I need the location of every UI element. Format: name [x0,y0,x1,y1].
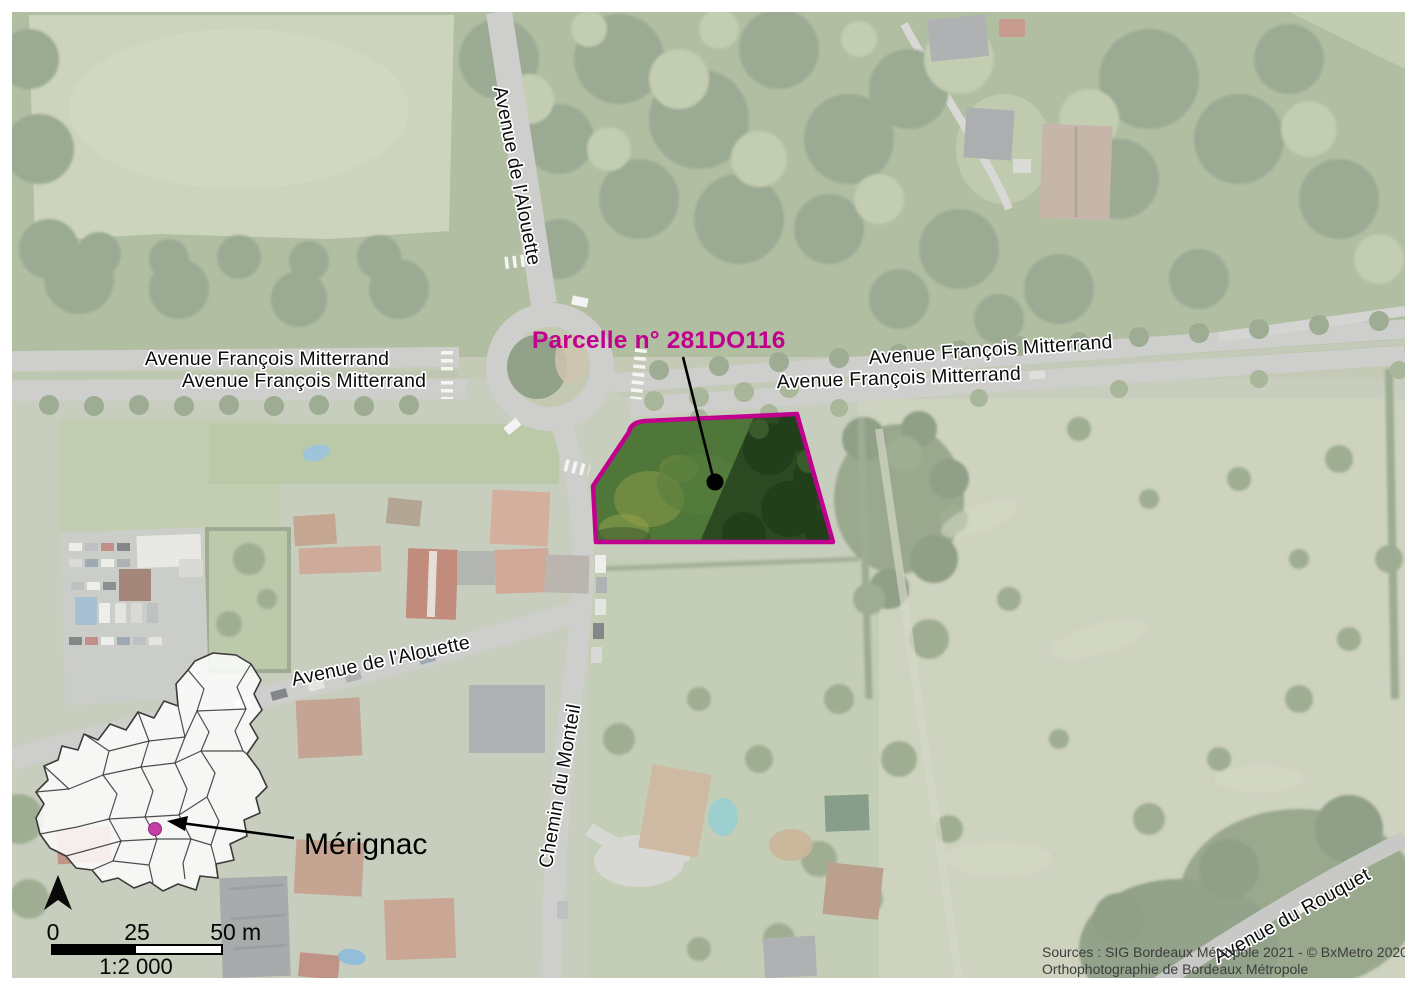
scale-tick-0: 0 [47,919,60,945]
street-label-mitterrand-left-upper: Avenue François Mitterrand [145,348,389,370]
parcel-label: Parcelle n° 281DO116 [532,327,786,354]
credit-line-2: Orthophotographie de Bordeaux Métropole [1042,961,1308,977]
scale-unit: m [242,919,261,945]
scale-tick-25: 25 [124,919,150,945]
commune-label: Mérignac [304,828,427,861]
credit-line-1: Sources : SIG Bordeaux Métropole 2021 - … [1042,944,1405,960]
map-svg: Avenue de l'Alouette Avenue François Mit… [12,12,1405,978]
map-canvas: Avenue de l'Alouette Avenue François Mit… [12,12,1405,978]
street-label-mitterrand-left-lower: Avenue François Mitterrand [182,370,426,392]
inset-location-dot [149,823,162,836]
scale-bar-filled-half [52,945,136,954]
scale-ratio: 1:2 000 [99,954,172,978]
map-document: Avenue de l'Alouette Avenue François Mit… [0,0,1419,1000]
scale-tick-50: 50 [210,919,236,945]
parcel-point-marker [707,474,724,491]
